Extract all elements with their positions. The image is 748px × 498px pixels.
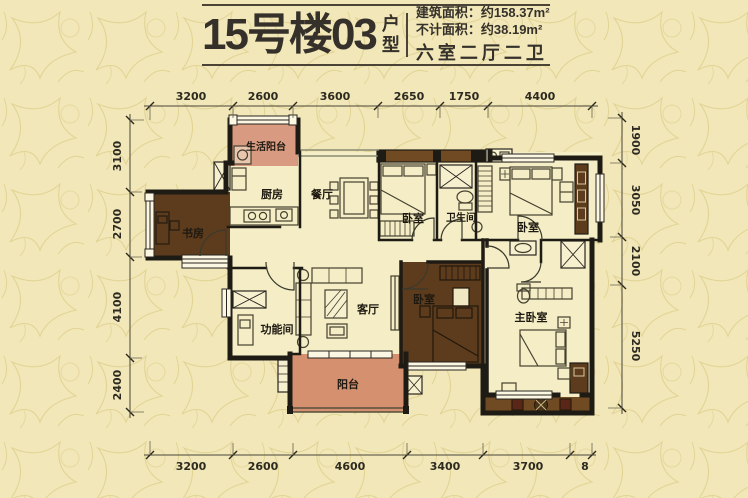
window-bedroom2-right	[596, 174, 604, 222]
label-function-room: 功能间	[261, 322, 294, 336]
label-dining: 餐厅	[310, 187, 333, 201]
dim-top-6: 4400	[525, 90, 556, 103]
label-study: 书房	[182, 226, 204, 240]
label-bedroom1: 卧室	[402, 211, 424, 225]
window-service-balcony	[229, 115, 297, 125]
window-bedroom3-bottom	[408, 362, 466, 370]
label-bedroom2: 卧室	[517, 220, 539, 234]
dim-top-1: 3200	[176, 90, 207, 103]
dim-top-4: 2650	[394, 90, 425, 103]
built-area: 建筑面积：约158.37m²	[416, 5, 550, 21]
area-info: 建筑面积：约158.37m² 不计面积：约38.19m² 六室二厅二卫	[416, 5, 550, 65]
excluded-area: 不计面积：约38.19m²	[416, 22, 550, 38]
dim-top-2: 2600	[248, 90, 279, 103]
window-left-wall	[222, 289, 231, 317]
dim-bottom-6: 8	[581, 460, 589, 473]
plan-title-suffix: 户型	[381, 14, 399, 56]
window-master-bottom	[496, 391, 552, 399]
dim-right-2: 3050	[629, 185, 642, 216]
bedroom2-wardrobe	[575, 164, 588, 234]
room-count: 六室二厅二卫	[416, 39, 550, 65]
room-study	[150, 192, 230, 258]
dim-bottom-5: 3700	[513, 460, 544, 473]
sliding-door-balcony	[308, 351, 392, 358]
label-living: 客厅	[356, 302, 379, 316]
room-bedroom3	[401, 262, 483, 366]
dim-left-2: 2700	[111, 208, 124, 239]
label-bedroom3: 卧室	[413, 292, 435, 306]
window-study-left	[145, 193, 154, 257]
dim-top-3: 3600	[320, 90, 351, 103]
label-bathroom: 卫生间	[446, 211, 476, 224]
dim-right-3: 2100	[629, 246, 642, 277]
window-bedroom2-top	[502, 154, 554, 162]
title-block: 15号楼03 户型 建筑面积：约158.37m² 不计面积：约38.19m² 六…	[202, 4, 550, 66]
label-service-balcony: 生活阳台	[246, 140, 286, 153]
label-balcony: 阳台	[337, 377, 359, 391]
dim-bottom-3: 4600	[335, 460, 366, 473]
dim-bottom-2: 2600	[248, 460, 279, 473]
dim-bottom-1: 3200	[176, 460, 207, 473]
dim-right-4: 5250	[629, 331, 642, 362]
title-divider	[406, 13, 408, 57]
label-kitchen: 厨房	[261, 187, 283, 201]
window-study-bay	[182, 255, 228, 268]
dim-bottom-4: 3400	[430, 460, 461, 473]
dim-left-4: 2400	[111, 369, 124, 400]
dim-left-1: 3100	[111, 140, 124, 171]
plan-title: 15号楼03	[202, 13, 376, 57]
floorplan-drawing: 生活阳台 厨房 餐厅 书房 卧室 卫生间 卧室 功能间 客厅 卧室 阳台 主卧室	[0, 0, 748, 498]
floorplan-page: 15号楼03 户型 建筑面积：约158.37m² 不计面积：约38.19m² 六…	[0, 0, 748, 498]
dim-right-1: 1900	[629, 125, 642, 156]
dim-left-3: 4100	[111, 291, 124, 322]
label-master-bedroom: 主卧室	[515, 310, 548, 324]
dim-top-5: 1750	[449, 90, 480, 103]
